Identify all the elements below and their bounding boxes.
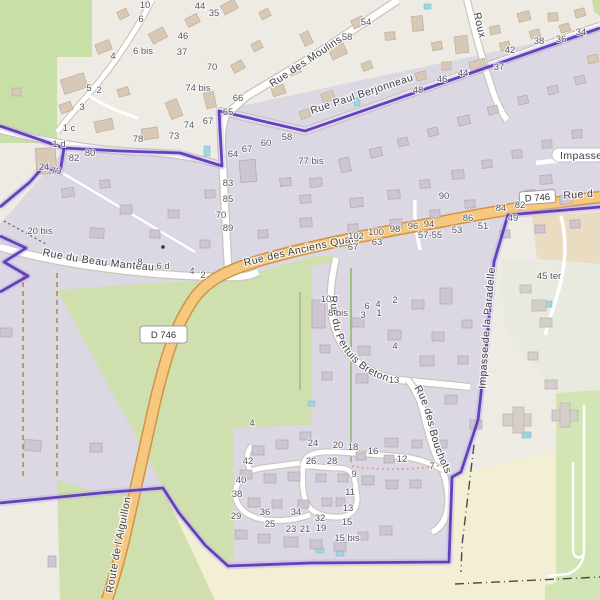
building bbox=[258, 230, 268, 239]
house-number: 67 bbox=[348, 242, 359, 253]
house-number: 29 bbox=[231, 511, 242, 522]
building bbox=[385, 32, 396, 41]
house-number: 12 bbox=[397, 454, 408, 465]
impasse-pill: Impasse bbox=[552, 148, 600, 162]
building bbox=[572, 130, 583, 139]
house-number: 74 bis bbox=[185, 83, 211, 94]
building bbox=[452, 170, 465, 180]
house-number: 4 bbox=[189, 266, 194, 277]
house-number: 9 bbox=[351, 469, 356, 480]
building bbox=[12, 88, 21, 96]
house-number: 1 bbox=[376, 308, 381, 319]
house-number: 42 bbox=[505, 45, 516, 56]
house-number: 67 bbox=[242, 144, 253, 155]
house-number: 82 bbox=[515, 200, 526, 211]
house-number: 10 bbox=[321, 294, 332, 305]
building bbox=[322, 372, 332, 380]
house-number: 90 bbox=[439, 191, 450, 202]
building bbox=[385, 438, 398, 447]
house-number: 45 ter bbox=[537, 271, 561, 282]
house-number: 79 bbox=[51, 166, 62, 177]
house-number: 40 bbox=[236, 475, 247, 486]
house-number: 4 bbox=[249, 418, 254, 429]
house-number: 2 bbox=[200, 270, 205, 281]
building bbox=[432, 332, 444, 341]
building bbox=[431, 41, 442, 51]
building bbox=[90, 228, 105, 239]
building bbox=[386, 480, 398, 489]
house-number: 16 bbox=[368, 446, 379, 457]
house-number: 44 bbox=[458, 68, 469, 79]
building bbox=[100, 180, 111, 189]
building bbox=[412, 440, 422, 448]
label-rue-d-partial: Rue d bbox=[563, 188, 594, 202]
building bbox=[454, 35, 469, 53]
house-number: 38 bbox=[534, 36, 545, 47]
house-number: 64 bbox=[228, 149, 239, 160]
building bbox=[310, 540, 322, 549]
house-number: 34 bbox=[576, 27, 587, 38]
house-number: 2 bbox=[96, 85, 101, 96]
house-number: 13 bbox=[343, 503, 354, 514]
impasse-pill-text: Impasse bbox=[560, 150, 600, 162]
house-number: 89 bbox=[223, 223, 234, 234]
house-number: 25 bbox=[265, 519, 276, 530]
house-number: 38 bbox=[232, 489, 243, 500]
house-number: 70 bbox=[216, 210, 227, 221]
building bbox=[141, 127, 158, 140]
house-number: 13 bbox=[389, 375, 400, 386]
building bbox=[513, 407, 524, 433]
house-number: 94 bbox=[424, 219, 435, 230]
house-number: 6 d bbox=[156, 261, 169, 272]
house-number: 24 bbox=[308, 438, 319, 449]
building bbox=[316, 474, 326, 482]
building bbox=[61, 187, 74, 198]
building bbox=[410, 480, 421, 488]
house-number: 24 bbox=[39, 162, 50, 173]
building bbox=[430, 210, 440, 219]
house-number: 1 d bbox=[52, 139, 65, 150]
house-number: 96 bbox=[408, 221, 419, 232]
house-number: 2 bbox=[392, 295, 397, 306]
building bbox=[465, 200, 475, 209]
building bbox=[0, 328, 12, 337]
house-number: 83 bbox=[223, 178, 234, 189]
building bbox=[570, 220, 580, 229]
house-number: 4 bbox=[392, 341, 397, 352]
building bbox=[489, 25, 500, 35]
house-number: 102 bbox=[348, 231, 364, 242]
building bbox=[276, 440, 288, 449]
building bbox=[535, 225, 545, 234]
building bbox=[120, 205, 132, 214]
building bbox=[48, 556, 56, 567]
building bbox=[300, 218, 312, 228]
building bbox=[420, 356, 434, 366]
building bbox=[388, 330, 401, 340]
building bbox=[24, 440, 42, 452]
building bbox=[540, 318, 552, 327]
building bbox=[90, 443, 102, 452]
house-number: 48 bbox=[413, 85, 424, 96]
house-number: 51 bbox=[478, 221, 489, 232]
house-number: 49 bbox=[508, 213, 519, 224]
building bbox=[168, 210, 179, 218]
house-number: 8 bbox=[137, 257, 142, 268]
building bbox=[322, 498, 332, 506]
building bbox=[350, 198, 364, 208]
house-number: 1 c bbox=[63, 123, 76, 134]
house-number: 6 bbox=[138, 14, 143, 25]
building bbox=[482, 160, 493, 169]
house-number: 8 bis bbox=[328, 308, 348, 319]
house-number: 5 bbox=[86, 83, 91, 94]
building bbox=[309, 177, 322, 188]
building bbox=[248, 498, 260, 507]
house-number: 53 bbox=[452, 225, 463, 236]
gate-marker bbox=[161, 245, 165, 249]
house-number: 57-55 bbox=[418, 230, 442, 241]
building bbox=[384, 455, 394, 463]
building bbox=[528, 352, 538, 360]
house-number: 65 bbox=[223, 107, 234, 118]
house-number: 86 bbox=[463, 213, 474, 224]
house-number: 36 bbox=[260, 507, 271, 518]
house-number: 10 bbox=[140, 0, 151, 11]
house-number: 15 bbox=[342, 517, 353, 528]
house-number: 36 bbox=[556, 34, 567, 45]
building bbox=[356, 452, 366, 460]
house-number: 19 bbox=[316, 523, 327, 534]
building bbox=[520, 285, 531, 293]
building bbox=[440, 288, 452, 304]
building bbox=[358, 346, 370, 355]
building bbox=[239, 159, 256, 182]
house-number: 6 bis bbox=[133, 46, 153, 57]
building bbox=[288, 472, 300, 481]
house-number: 3 bbox=[360, 310, 365, 321]
building bbox=[542, 140, 553, 149]
house-number: 63 bbox=[372, 237, 383, 248]
house-number: 26 bbox=[306, 456, 317, 467]
building bbox=[540, 175, 553, 185]
building bbox=[458, 356, 468, 364]
building bbox=[280, 177, 292, 186]
house-number: 46 bbox=[178, 31, 189, 42]
building bbox=[412, 300, 424, 309]
building bbox=[320, 345, 330, 353]
house-number: 80 bbox=[85, 148, 96, 159]
house-number: 20 bis bbox=[27, 226, 53, 237]
house-number: 70 bbox=[207, 62, 218, 73]
building bbox=[388, 190, 401, 200]
building bbox=[548, 13, 558, 22]
building bbox=[532, 300, 546, 311]
map-canvas[interactable]: Rue des Moulins Rue Paul Berjonneau Rue … bbox=[0, 0, 600, 600]
house-number: 37 bbox=[177, 47, 188, 58]
house-number: 20 bbox=[333, 440, 344, 451]
d746-shield-top-text: D 746 bbox=[524, 192, 550, 205]
building bbox=[362, 476, 374, 485]
house-number: 28 bbox=[327, 456, 338, 467]
house-number: 3 bbox=[79, 102, 84, 113]
house-number: 77 bis bbox=[298, 156, 324, 167]
house-number: 58 bbox=[282, 132, 293, 143]
house-number: 37 bbox=[494, 62, 505, 73]
building bbox=[200, 240, 210, 248]
building bbox=[284, 537, 298, 547]
house-number: 54 bbox=[361, 17, 372, 28]
d746-shield-text: D 746 bbox=[151, 330, 176, 341]
house-number: 44 bbox=[195, 1, 206, 12]
house-number: 78 bbox=[133, 134, 144, 145]
building bbox=[442, 62, 451, 70]
house-number: 15 bis bbox=[334, 533, 360, 544]
house-number: 66 bbox=[233, 93, 244, 104]
house-number: 42 bbox=[243, 456, 254, 467]
building bbox=[205, 190, 215, 199]
house-number: 84 bbox=[496, 203, 507, 214]
building bbox=[252, 446, 264, 455]
house-number: 60 bbox=[261, 138, 272, 149]
house-number: 67 bbox=[203, 116, 214, 127]
building bbox=[545, 380, 557, 389]
d746-shield: D 746 bbox=[140, 326, 187, 343]
house-number: 7 bbox=[429, 461, 434, 472]
building bbox=[380, 526, 392, 535]
building bbox=[445, 395, 457, 404]
house-number: 58 bbox=[342, 32, 353, 43]
house-number: 73 bbox=[169, 131, 180, 142]
building bbox=[300, 195, 312, 204]
house-number: 34 bbox=[291, 507, 302, 518]
house-number: 35 bbox=[209, 8, 220, 19]
building bbox=[272, 500, 282, 508]
building bbox=[411, 15, 424, 31]
building bbox=[150, 230, 160, 238]
building bbox=[462, 320, 472, 328]
map-svg: Rue des Moulins Rue Paul Berjonneau Rue … bbox=[0, 0, 600, 600]
building bbox=[264, 474, 276, 483]
house-number: 98 bbox=[390, 224, 401, 235]
building bbox=[235, 530, 247, 539]
house-number: 21 bbox=[300, 524, 311, 535]
house-number: 85 bbox=[223, 194, 234, 205]
house-number: 74 bbox=[184, 120, 195, 131]
house-number: 46 bbox=[437, 74, 448, 85]
building bbox=[512, 150, 523, 159]
building bbox=[420, 180, 431, 189]
house-number: 82 bbox=[69, 153, 80, 164]
building bbox=[338, 474, 348, 482]
house-number: 4 bbox=[110, 51, 115, 62]
house-number: 23 bbox=[286, 524, 297, 535]
building bbox=[258, 534, 270, 543]
house-number: 11 bbox=[345, 487, 355, 498]
house-number: 18 bbox=[348, 442, 359, 453]
building bbox=[560, 403, 570, 427]
